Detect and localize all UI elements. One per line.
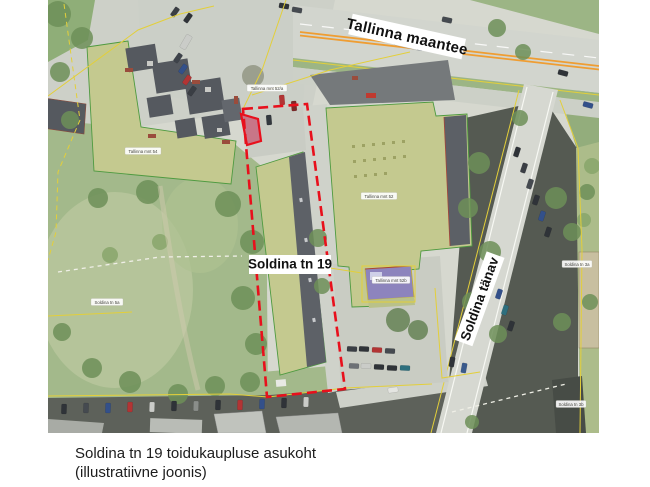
caption-line-1: Soldina tn 19 toidukaupluse asukoht: [75, 444, 316, 463]
site-label-soldina-tn19: Soldina tn 19: [248, 255, 332, 274]
svg-text:Soldina tn 3b: Soldina tn 3b: [558, 402, 584, 407]
svg-text:Soldina tn 3a: Soldina tn 3a: [564, 262, 590, 267]
svg-text:Soldina tn 19: Soldina tn 19: [248, 257, 332, 272]
aerial-map: Tallinna mnt 52/a Tallinna mnt 54 Tallin…: [0, 0, 650, 487]
figure-page: Tallinna mnt 52/a Tallinna mnt 54 Tallin…: [0, 0, 650, 487]
svg-text:Tallinna mnt 52: Tallinna mnt 52: [365, 194, 395, 199]
parcel-label-tn3b: Soldina tn 3b: [556, 401, 586, 408]
parcel-label-mnt52a: Tallinna mnt 52/a: [247, 85, 287, 92]
parcel-label-mnt54: Tallinna mnt 54: [125, 148, 161, 155]
svg-text:Tallinna mnt 52/a: Tallinna mnt 52/a: [251, 86, 284, 91]
parcel-label-mnt52b: Tallinna mnt 52b: [372, 277, 410, 284]
figure-caption: Soldina tn 19 toidukaupluse asukoht (ill…: [75, 444, 316, 482]
parcel-label-mnt52: Tallinna mnt 52: [361, 193, 397, 200]
parcel-label-tn3a: Soldina tn 3a: [562, 261, 592, 268]
caption-line-2: (illustratiivne joonis): [75, 463, 316, 482]
svg-text:Tallinna mnt 54: Tallinna mnt 54: [129, 149, 159, 154]
parcel-label-tn5a: Soldina tn 5a: [91, 299, 123, 306]
svg-text:Tallinna mnt 52b: Tallinna mnt 52b: [375, 278, 407, 283]
svg-text:Soldina tn 5a: Soldina tn 5a: [94, 300, 120, 305]
